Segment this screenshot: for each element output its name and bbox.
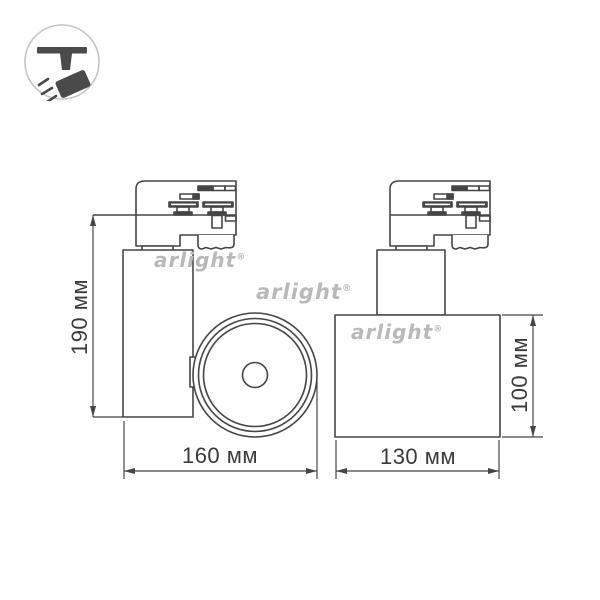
adapter-lower-housing xyxy=(452,235,488,249)
brand-watermark-center: arlight® xyxy=(256,280,351,304)
dimension-label-front-width: 130 мм xyxy=(358,444,478,470)
product-drawing-canvas: arlight® arlight® arlight® 190 мм 160 мм… xyxy=(0,0,600,600)
dimension-label-side-height: 190 мм xyxy=(68,257,92,377)
adapter-lower-housing xyxy=(198,235,234,249)
stem xyxy=(377,250,445,315)
dimension-label-side-width: 160 мм xyxy=(160,443,280,469)
brand-watermark-body: arlight® xyxy=(351,320,442,344)
lamp-face xyxy=(193,313,317,437)
brand-text: arlight xyxy=(154,248,236,272)
registered-mark: ® xyxy=(342,283,351,294)
registered-mark: ® xyxy=(236,252,245,262)
brand-text: arlight xyxy=(351,320,433,344)
front-view xyxy=(335,181,500,437)
side-view xyxy=(93,181,317,437)
dimension-label-front-height: 100 мм xyxy=(508,315,532,435)
dim-side-height xyxy=(90,215,123,417)
brand-text: arlight xyxy=(256,280,342,304)
body-side xyxy=(123,250,193,417)
registered-mark: ® xyxy=(433,324,442,334)
brand-watermark-adapter: arlight® xyxy=(154,248,245,272)
